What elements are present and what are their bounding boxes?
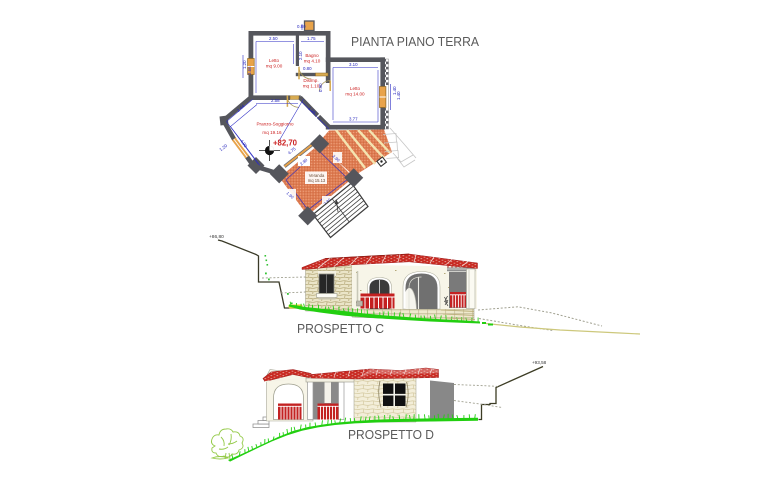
svg-text:2.58: 2.58 bbox=[271, 98, 280, 103]
svg-text:PIANTA PIANO TERRA: PIANTA PIANO TERRA bbox=[351, 34, 479, 49]
svg-text:mq 14.00: mq 14.00 bbox=[345, 92, 365, 97]
svg-text:1.75: 1.75 bbox=[307, 36, 316, 41]
svg-text:PROSPETTO D: PROSPETTO D bbox=[348, 427, 434, 442]
svg-text:2.50: 2.50 bbox=[269, 36, 278, 41]
svg-text:2.10: 2.10 bbox=[298, 51, 303, 60]
svg-text:Pranzo-Soggiorno: Pranzo-Soggiorno bbox=[256, 122, 293, 127]
svg-text:+86,80: +86,80 bbox=[209, 234, 224, 240]
svg-text:mq 4.10: mq 4.10 bbox=[304, 59, 321, 64]
svg-text:+82,70: +82,70 bbox=[273, 139, 298, 148]
svg-text:0.80: 0.80 bbox=[303, 66, 312, 71]
svg-text:PROSPETTO C: PROSPETTO C bbox=[297, 321, 384, 336]
svg-text:Letto: Letto bbox=[350, 86, 361, 91]
svg-text:Disimp.: Disimp. bbox=[303, 78, 318, 83]
svg-text:Bagno: Bagno bbox=[305, 53, 319, 58]
svg-text:0.80: 0.80 bbox=[297, 24, 306, 29]
svg-text:1.40: 1.40 bbox=[396, 91, 401, 100]
svg-text:3.66: 3.66 bbox=[247, 66, 252, 75]
svg-text:mq 19.16: mq 19.16 bbox=[262, 130, 282, 135]
svg-text:mq 15.13: mq 15.13 bbox=[308, 178, 326, 183]
svg-text:+93,58: +93,58 bbox=[532, 360, 547, 365]
svg-text:Letto: Letto bbox=[269, 58, 280, 63]
svg-text:3.77: 3.77 bbox=[349, 117, 358, 122]
svg-text:mq 1.10: mq 1.10 bbox=[303, 84, 320, 89]
svg-text:mq 9.00: mq 9.00 bbox=[266, 64, 283, 69]
svg-text:3.10: 3.10 bbox=[349, 62, 358, 67]
